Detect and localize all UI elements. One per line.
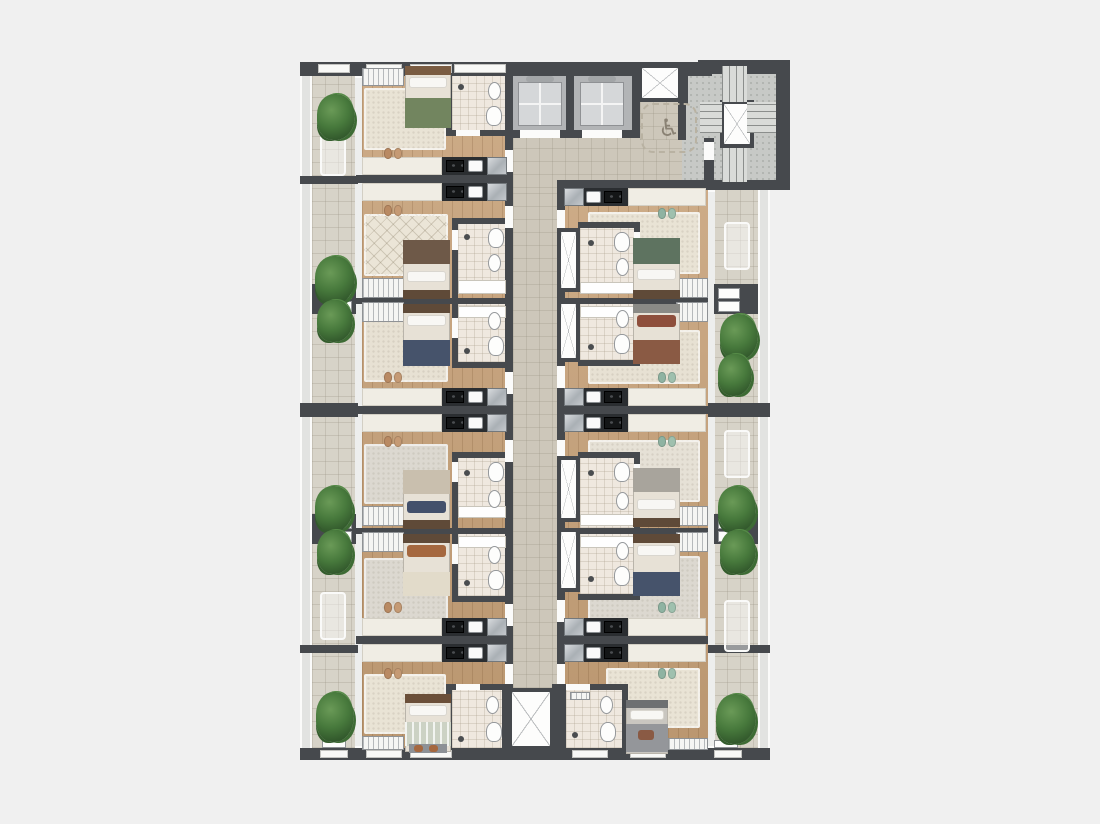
cooktop bbox=[446, 621, 464, 633]
cooktop bbox=[604, 621, 622, 633]
bath-sink bbox=[616, 310, 629, 328]
bath-toilet bbox=[488, 336, 504, 356]
wardrobe bbox=[362, 68, 404, 86]
kitchen-counter bbox=[362, 157, 442, 175]
slippers bbox=[668, 208, 676, 219]
bed-blanket bbox=[403, 572, 450, 596]
wardrobe bbox=[676, 278, 708, 298]
stair-door bbox=[704, 142, 714, 160]
fridge bbox=[564, 388, 584, 406]
bed-blanket bbox=[403, 340, 450, 366]
slippers bbox=[394, 668, 402, 679]
wardrobe bbox=[676, 506, 708, 526]
unit-entry-door bbox=[505, 664, 513, 684]
slippers bbox=[394, 148, 402, 159]
balcony-glass-right bbox=[708, 190, 715, 748]
kitchen-sink bbox=[586, 417, 601, 429]
bath-wall bbox=[452, 362, 510, 368]
bed-headboard bbox=[403, 290, 450, 299]
slippers bbox=[384, 205, 392, 216]
shower-head bbox=[572, 732, 578, 738]
corridor-floor bbox=[513, 132, 557, 688]
fridge bbox=[487, 183, 507, 201]
balcony-slab-wall bbox=[300, 403, 358, 417]
bath-door bbox=[452, 462, 458, 482]
shower-head bbox=[458, 84, 464, 90]
bath-door bbox=[566, 684, 590, 690]
fridge bbox=[564, 414, 584, 432]
slippers bbox=[658, 602, 666, 613]
bath-sink bbox=[488, 546, 501, 564]
cooktop bbox=[604, 391, 622, 403]
bath-toilet bbox=[614, 566, 630, 586]
bath-toilet bbox=[488, 228, 504, 248]
elevator-detail bbox=[526, 76, 554, 82]
shower-head bbox=[464, 470, 470, 476]
bed-headboard bbox=[403, 304, 450, 313]
cooktop bbox=[446, 647, 464, 659]
bed-pillow bbox=[409, 77, 447, 88]
kitchen-sink bbox=[586, 191, 601, 203]
bath-door bbox=[452, 230, 458, 250]
unit-wall bbox=[356, 406, 513, 414]
fridge bbox=[487, 388, 507, 406]
slippers bbox=[384, 602, 392, 613]
kitchen-sink bbox=[468, 647, 483, 659]
bath-wall bbox=[452, 218, 510, 224]
bath-door bbox=[452, 318, 458, 338]
bed-pillow bbox=[407, 545, 446, 557]
slippers bbox=[394, 372, 402, 383]
bath-sink bbox=[488, 490, 501, 508]
bench-cushion bbox=[414, 745, 423, 752]
slippers bbox=[668, 436, 676, 447]
unit-wall bbox=[356, 636, 513, 644]
unit-entry-door bbox=[557, 664, 565, 684]
shower-head bbox=[458, 736, 464, 742]
elevator-cab bbox=[518, 82, 562, 126]
unit-entry-door bbox=[505, 440, 513, 462]
bed-headboard bbox=[405, 694, 451, 703]
window bbox=[454, 64, 506, 73]
kitchen-counter bbox=[628, 618, 706, 636]
fridge bbox=[564, 188, 584, 206]
kitchen-sink bbox=[586, 647, 601, 659]
bath-toilet bbox=[488, 570, 504, 590]
bath-sink bbox=[616, 258, 629, 276]
bath-sink bbox=[600, 696, 613, 714]
bath-toilet bbox=[614, 462, 630, 482]
wardrobe bbox=[676, 302, 708, 322]
bath-toilet bbox=[488, 462, 504, 482]
bath-vanity bbox=[458, 536, 506, 548]
bench-cushion bbox=[429, 745, 438, 752]
bed-pillow bbox=[630, 710, 664, 720]
shower-head bbox=[588, 344, 594, 350]
bed-pillow bbox=[637, 499, 676, 510]
wardrobe bbox=[362, 532, 404, 552]
shaft bbox=[508, 688, 554, 750]
unit-wall bbox=[557, 406, 708, 414]
shaft bbox=[638, 64, 682, 102]
bath-sink bbox=[488, 82, 501, 100]
slippers bbox=[394, 602, 402, 613]
slippers bbox=[668, 668, 676, 679]
bed-blanket bbox=[633, 468, 680, 492]
bath-wall bbox=[578, 594, 640, 600]
wardrobe bbox=[362, 736, 404, 750]
slippers bbox=[668, 372, 676, 383]
shower-head bbox=[464, 234, 470, 240]
kitchen-sink bbox=[468, 186, 483, 198]
accessibility-zone: ♿ bbox=[641, 103, 697, 153]
bed-headboard bbox=[403, 534, 450, 543]
bed-blanket bbox=[633, 572, 680, 596]
wardrobe bbox=[362, 278, 404, 298]
window bbox=[366, 750, 402, 758]
bed-headboard bbox=[633, 534, 680, 543]
towel-rail bbox=[570, 692, 590, 700]
bed-pillow bbox=[407, 501, 446, 513]
bath-sink bbox=[616, 492, 629, 510]
kitchen-counter bbox=[628, 644, 706, 662]
bed-pillow bbox=[409, 705, 447, 716]
shower-head bbox=[464, 348, 470, 354]
bath-wall bbox=[578, 452, 640, 458]
shaft bbox=[557, 456, 580, 522]
balcony-rail-right bbox=[758, 190, 770, 748]
bed-blanket bbox=[633, 238, 680, 264]
bath-sink bbox=[488, 254, 501, 272]
bed-decor bbox=[638, 730, 654, 740]
bath-sink bbox=[488, 312, 501, 330]
fridge bbox=[487, 644, 507, 662]
kitchen-counter bbox=[362, 414, 442, 432]
bath-vanity bbox=[580, 514, 634, 526]
accessibility-icon: ♿ bbox=[658, 116, 680, 140]
shaft bbox=[557, 228, 580, 292]
bath-toilet bbox=[614, 232, 630, 252]
stair-treads bbox=[747, 102, 776, 133]
bed-blanket bbox=[405, 98, 451, 128]
slippers bbox=[658, 372, 666, 383]
balcony-table bbox=[724, 222, 750, 270]
kitchen-sink bbox=[468, 160, 483, 172]
bath-toilet bbox=[486, 722, 502, 742]
wardrobe bbox=[676, 532, 708, 552]
bed-headboard bbox=[405, 66, 451, 75]
unit-wall bbox=[557, 636, 708, 644]
bath-vanity bbox=[458, 280, 506, 294]
bath-vanity bbox=[458, 506, 506, 518]
ac-unit bbox=[718, 288, 740, 299]
floor-plan: ♿ bbox=[0, 0, 1100, 824]
kitchen-sink bbox=[468, 417, 483, 429]
bed-blanket bbox=[405, 722, 451, 746]
shower-head bbox=[588, 240, 594, 246]
elevator-wall bbox=[566, 62, 574, 132]
bath-sink bbox=[616, 542, 629, 560]
cooktop bbox=[446, 391, 464, 403]
shaft bbox=[557, 528, 580, 592]
balcony-table bbox=[724, 430, 750, 478]
kitchen-counter bbox=[362, 183, 442, 201]
window bbox=[572, 750, 608, 758]
slippers bbox=[384, 372, 392, 383]
shower-head bbox=[588, 576, 594, 582]
window bbox=[318, 64, 350, 73]
fridge bbox=[487, 414, 507, 432]
bath-wall bbox=[578, 222, 640, 228]
slippers bbox=[384, 668, 392, 679]
bed-blanket bbox=[403, 470, 450, 494]
bed-blanket bbox=[633, 340, 680, 364]
bath-wall bbox=[578, 360, 640, 366]
slippers bbox=[658, 436, 666, 447]
bed-pillow bbox=[637, 545, 676, 556]
bath-door bbox=[456, 130, 480, 136]
bed-pillow bbox=[637, 269, 676, 280]
slippers bbox=[658, 668, 666, 679]
stair-treads bbox=[722, 66, 747, 102]
kitchen-counter bbox=[362, 618, 442, 636]
window bbox=[714, 750, 742, 758]
bed-pillow bbox=[407, 315, 446, 326]
bath-sink bbox=[486, 696, 499, 714]
kitchen-counter bbox=[362, 644, 442, 662]
bed-headboard bbox=[633, 304, 680, 313]
stair-treads bbox=[700, 102, 722, 133]
unit-entry-door bbox=[557, 366, 565, 388]
slippers bbox=[394, 436, 402, 447]
unit-entry-door bbox=[505, 206, 513, 228]
fridge bbox=[564, 644, 584, 662]
shower-head bbox=[588, 470, 594, 476]
balcony-divider-wall bbox=[300, 176, 358, 184]
elevator-door bbox=[582, 130, 622, 138]
slippers bbox=[384, 148, 392, 159]
shower-head bbox=[464, 580, 470, 586]
elevator-detail bbox=[588, 76, 616, 82]
kitchen-counter bbox=[628, 388, 706, 406]
slippers bbox=[658, 208, 666, 219]
wardrobe bbox=[668, 738, 708, 750]
wardrobe bbox=[362, 506, 404, 526]
kitchen-counter bbox=[362, 388, 442, 406]
balcony-table bbox=[320, 592, 346, 640]
slippers bbox=[668, 602, 676, 613]
bed-pillow bbox=[637, 315, 676, 327]
balcony-slab-wall bbox=[708, 403, 770, 417]
bed-pillow bbox=[407, 271, 446, 282]
cooktop bbox=[446, 160, 464, 172]
bath-toilet bbox=[600, 722, 616, 742]
cooktop bbox=[446, 417, 464, 429]
fridge bbox=[487, 157, 507, 175]
balcony-divider-wall bbox=[300, 645, 358, 653]
bath-vanity bbox=[580, 282, 634, 294]
kitchen-sink bbox=[468, 391, 483, 403]
bed-headboard bbox=[633, 518, 680, 527]
bed-headboard bbox=[633, 290, 680, 299]
cooktop bbox=[604, 417, 622, 429]
window bbox=[320, 750, 348, 758]
cooktop bbox=[446, 186, 464, 198]
elevator-wall bbox=[505, 62, 513, 132]
ac-unit bbox=[718, 301, 740, 312]
cooktop bbox=[604, 647, 622, 659]
kitchen-sink bbox=[586, 621, 601, 633]
kitchen-counter bbox=[628, 188, 706, 206]
fridge bbox=[564, 618, 584, 636]
cooktop bbox=[604, 191, 622, 203]
kitchen-sink bbox=[468, 621, 483, 633]
wall bbox=[552, 684, 566, 750]
fridge bbox=[487, 618, 507, 636]
balcony-table bbox=[724, 600, 750, 652]
kitchen-counter bbox=[628, 414, 706, 432]
unit-wall bbox=[557, 180, 708, 188]
bath-toilet bbox=[614, 334, 630, 354]
stair-treads bbox=[722, 148, 747, 182]
wall-stair-right bbox=[776, 60, 790, 190]
wardrobe bbox=[362, 302, 404, 322]
slippers bbox=[394, 205, 402, 216]
bath-door bbox=[456, 684, 480, 690]
unit-wall bbox=[356, 175, 513, 183]
bed-blanket bbox=[403, 240, 450, 264]
slippers bbox=[384, 436, 392, 447]
bed-headboard bbox=[626, 700, 668, 708]
bath-wall bbox=[452, 596, 510, 602]
bath-wall bbox=[452, 452, 510, 458]
kitchen-sink bbox=[586, 391, 601, 403]
elevator-door bbox=[520, 130, 560, 138]
elevator-cab bbox=[580, 82, 624, 126]
bed-headboard bbox=[403, 520, 450, 529]
bath-toilet bbox=[486, 106, 502, 126]
shaft bbox=[557, 300, 580, 362]
